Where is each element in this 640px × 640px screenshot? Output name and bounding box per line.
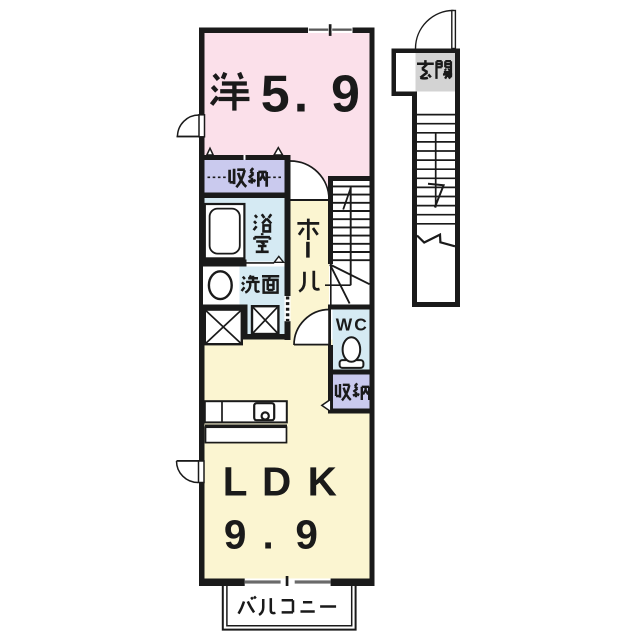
svg-text:L: L (223, 458, 248, 504)
svg-text:5: 5 (261, 66, 290, 124)
svg-text:.: . (262, 511, 273, 557)
svg-text:D: D (262, 458, 291, 504)
svg-text:.: . (294, 66, 308, 124)
svg-text:K: K (308, 458, 337, 504)
svg-text:9: 9 (331, 66, 360, 124)
svg-text:WC: WC (336, 314, 369, 334)
svg-text:9: 9 (295, 511, 318, 557)
svg-text:9: 9 (224, 511, 247, 557)
